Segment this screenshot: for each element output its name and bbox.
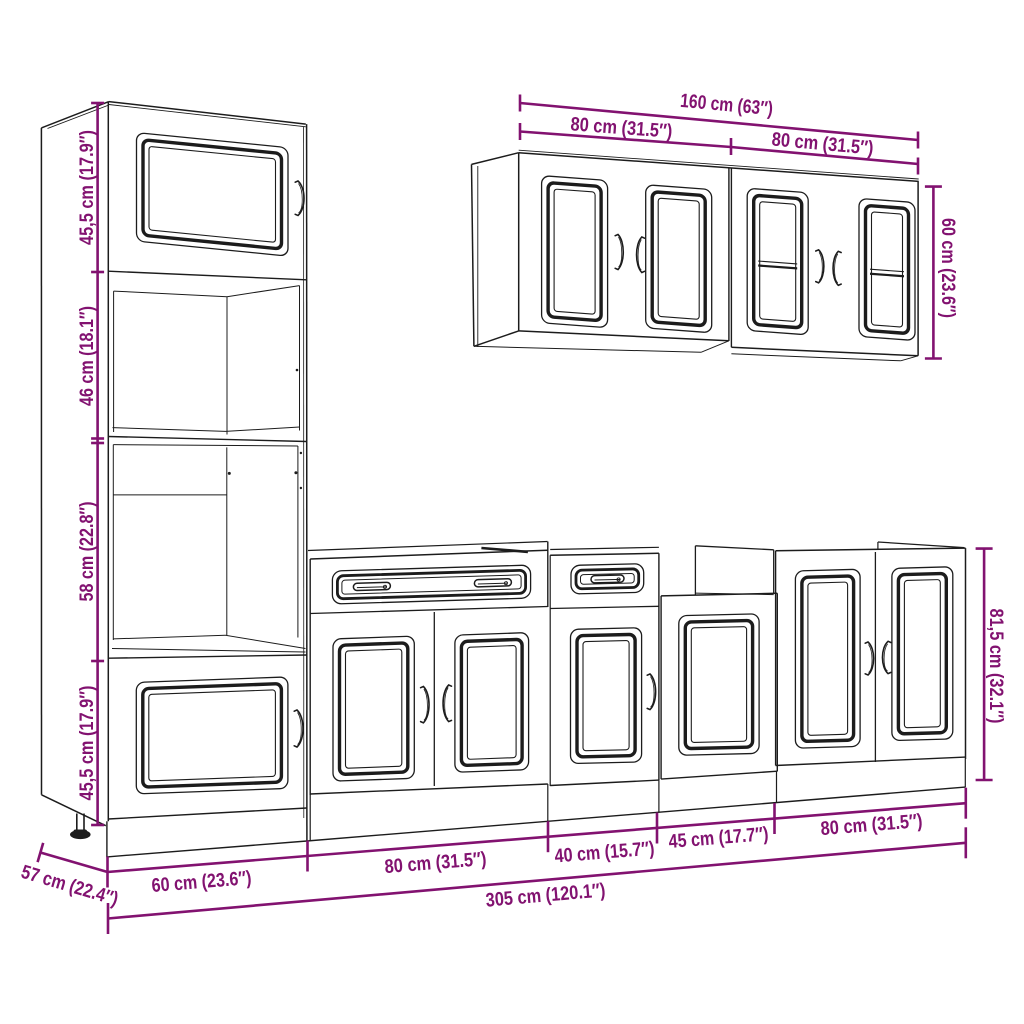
svg-text:60 cm (23.6″): 60 cm (23.6″) bbox=[937, 218, 959, 318]
svg-text:46 cm (18.1″): 46 cm (18.1″) bbox=[76, 306, 98, 406]
svg-text:45,5 cm (17.9″): 45,5 cm (17.9″) bbox=[76, 130, 98, 245]
svg-text:45,5 cm (17.9″): 45,5 cm (17.9″) bbox=[76, 686, 98, 801]
svg-text:81,5 cm (32.1″): 81,5 cm (32.1″) bbox=[985, 609, 1007, 724]
svg-text:58 cm (22.8″): 58 cm (22.8″) bbox=[76, 502, 98, 602]
